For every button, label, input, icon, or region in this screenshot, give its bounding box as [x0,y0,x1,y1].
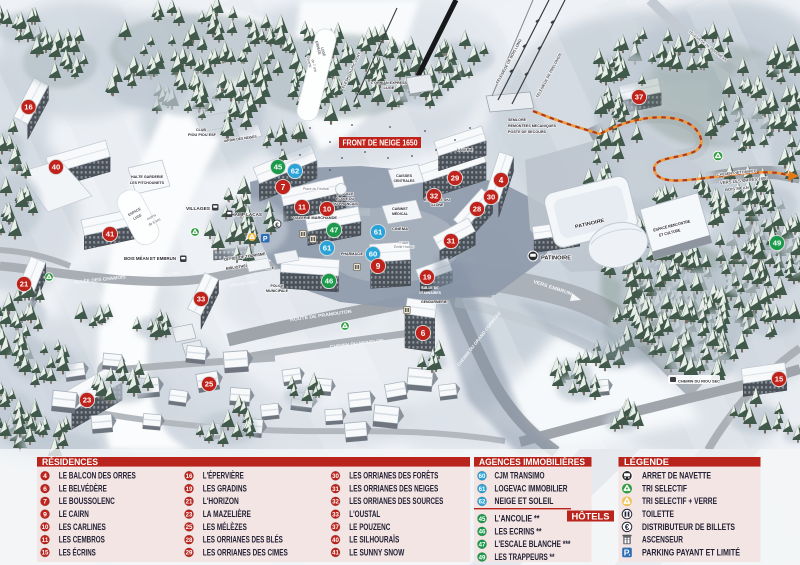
svg-text:SKI FRANÇAIS: SKI FRANÇAIS [332,202,358,206]
svg-text:6: 6 [43,486,47,493]
svg-text:16: 16 [24,103,32,112]
svg-text:CABINET: CABINET [392,207,409,211]
svg-text:LES GRADINS: LES GRADINS [203,484,247,495]
svg-text:ARRET DE NAVETTE: ARRET DE NAVETTE [642,471,711,482]
svg-text:POLICE: POLICE [271,284,284,288]
svg-text:25: 25 [205,380,214,389]
svg-text:MUNICIPALE: MUNICIPALE [266,289,288,293]
svg-text:LES ORRIANES DES CIMES: LES ORRIANES DES CIMES [203,547,288,558]
svg-text:61: 61 [479,486,486,493]
svg-text:GALERIE MARCHANDE: GALERIE MARCHANDE [293,216,337,220]
svg-text:SEMLORE: SEMLORE [508,117,526,122]
svg-text:DISTRIBUTEUR DE BILLETS: DISTRIBUTEUR DE BILLETS [642,522,735,533]
svg-text:LES CARLINES: LES CARLINES [59,522,106,533]
svg-text:LUGE: LUGE [384,85,395,90]
svg-text:LES TRAPPEURS **: LES TRAPPEURS ** [495,552,555,563]
svg-text:POSTE DE SECOURS: POSTE DE SECOURS [508,129,546,134]
svg-text:P.: P. [624,548,631,558]
svg-text:TOILETTE: TOILETTE [642,509,674,520]
svg-text:62: 62 [291,167,299,176]
svg-text:L'OUSTAL: L'OUSTAL [349,509,380,520]
svg-text:32: 32 [332,499,339,506]
svg-text:LE CAIRN: LE CAIRN [59,509,89,520]
svg-text:23: 23 [83,396,91,405]
svg-text:LÉGENDE: LÉGENDE [624,457,669,467]
svg-text:Émile Hodoul: Émile Hodoul [394,244,414,249]
svg-text:21: 21 [186,499,193,506]
svg-text:LES PITCHOUNETS: LES PITCHOUNETS [130,181,164,185]
svg-text:SALLE DE: SALLE DE [422,286,439,290]
svg-text:L'ANCOLIE **: L'ANCOLIE ** [495,514,540,525]
svg-text:31: 31 [332,486,339,493]
svg-text:23: 23 [186,511,193,518]
svg-text:BOIS MÉAN ET EMBRUN: BOIS MÉAN ET EMBRUN [124,256,176,261]
svg-text:LE POUZENC: LE POUZENC [349,522,390,533]
svg-text:TRI SELECTIF + VERRE: TRI SELECTIF + VERRE [642,496,717,507]
svg-text:6: 6 [421,329,426,338]
svg-text:CJM TRANSIMO: CJM TRANSIMO [495,471,545,482]
svg-text:LE BALCON DES ORRES: LE BALCON DES ORRES [59,471,136,482]
svg-text:33: 33 [332,511,339,518]
svg-text:9: 9 [43,511,47,518]
svg-text:21: 21 [20,280,29,289]
svg-text:15: 15 [42,550,49,557]
svg-text:32: 32 [430,192,438,201]
svg-text:PARKING PAYANT ET LIMITÉ: PARKING PAYANT ET LIMITÉ [642,546,740,558]
svg-text:LES ORRIANES DES SOURCES: LES ORRIANES DES SOURCES [349,496,443,507]
svg-text:CHAMP LACAS: CHAMP LACAS [228,212,262,217]
svg-text:LES ORRIANES DES NEIGES: LES ORRIANES DES NEIGES [349,484,438,495]
svg-text:MÉDICAL: MÉDICAL [392,211,409,216]
svg-text:REMONTÉES MÉCANIQUES: REMONTÉES MÉCANIQUES [508,123,556,128]
svg-text:PATINOIRE: PATINOIRE [541,256,571,262]
svg-text:CHEMIN DU RIOU SEC: CHEMIN DU RIOU SEC [678,379,720,384]
svg-text:LES CEMBROS: LES CEMBROS [59,535,105,546]
svg-text:30: 30 [332,473,339,480]
svg-text:SÉMINAIRES: SÉMINAIRES [419,290,441,295]
svg-text:LES ORRIANES DES FORÊTS: LES ORRIANES DES FORÊTS [349,470,438,482]
svg-text:ASCENSEUR: ASCENSEUR [642,535,683,546]
svg-text:40: 40 [332,537,339,544]
svg-text:L'HORIZON: L'HORIZON [203,496,239,507]
svg-text:LE SUNNY SNOW: LE SUNNY SNOW [349,547,405,558]
svg-text:L'ÉPERVIÈRE: L'ÉPERVIÈRE [203,470,244,482]
svg-text:11: 11 [298,203,307,212]
svg-text:60: 60 [369,250,377,259]
svg-text:49: 49 [479,554,486,561]
svg-text:47: 47 [479,542,486,549]
svg-text:30: 30 [487,193,495,202]
svg-text:19: 19 [186,486,193,493]
svg-text:CLUB: CLUB [196,128,206,132]
svg-text:37: 37 [332,524,339,531]
svg-text:LES ORRIANES DES BLÉS: LES ORRIANES DES BLÉS [203,534,283,546]
svg-text:28: 28 [186,537,193,544]
svg-text:9: 9 [376,262,381,271]
svg-text:15: 15 [775,375,784,384]
svg-text:PHARMACIE: PHARMACIE [341,252,363,256]
svg-text:46: 46 [479,529,486,536]
svg-text:LE BOUSSOLENC: LE BOUSSOLENC [59,496,115,507]
svg-text:61: 61 [323,244,332,253]
svg-text:P: P [263,236,268,243]
svg-text:LE SILHOURAÏS: LE SILHOURAÏS [349,535,399,546]
svg-text:40: 40 [52,163,60,172]
svg-text:25: 25 [186,524,193,531]
svg-text:33: 33 [197,295,205,304]
svg-text:29: 29 [186,550,193,557]
svg-text:AGENCES IMMOBILIÈRES: AGENCES IMMOBILIÈRES [479,457,585,467]
svg-text:16: 16 [186,473,193,480]
svg-text:CENTRALES: CENTRALES [394,179,415,183]
svg-text:HALTE GARDERIE: HALTE GARDERIE [131,175,163,179]
svg-text:61: 61 [374,228,383,237]
svg-text:62: 62 [479,499,486,506]
svg-text:19: 19 [423,273,431,282]
svg-text:HÔTELS: HÔTELS [572,510,610,521]
svg-text:46: 46 [325,277,333,286]
svg-text:LAVERIE: LAVERIE [457,148,473,152]
svg-text:CINÉMA: CINÉMA [392,226,408,231]
svg-text:4: 4 [499,176,504,185]
svg-text:PIOU PIOU ESF: PIOU PIOU ESF [188,133,217,137]
svg-text:€: € [625,523,630,532]
svg-text:CAISSES: CAISSES [396,174,412,178]
svg-text:4: 4 [43,473,47,480]
svg-text:28: 28 [473,205,481,214]
svg-text:Place du Festival: Place du Festival [303,187,329,191]
svg-text:LES ECRINS **: LES ECRINS ** [495,526,542,537]
svg-text:10: 10 [323,205,331,214]
svg-text:FRONT DE NEIGE 1650: FRONT DE NEIGE 1650 [343,139,418,148]
svg-text:TRI SELECTIF: TRI SELECTIF [642,484,687,495]
svg-text:GENDARMERIE: GENDARMERIE [421,300,448,304]
svg-text:7: 7 [281,183,286,192]
svg-text:31: 31 [447,237,456,246]
svg-text:41: 41 [332,550,339,557]
svg-text:ÉCOLE DU: ÉCOLE DU [336,196,354,201]
svg-text:VILLAGES: VILLAGES [186,206,210,211]
svg-text:47: 47 [330,226,338,235]
svg-text:LA MAZELIÈRE: LA MAZELIÈRE [203,508,251,520]
svg-text:29: 29 [451,174,459,183]
svg-text:LES MÉLÈZES: LES MÉLÈZES [203,521,247,533]
svg-text:NEIGE ET SOLEIL: NEIGE ET SOLEIL [495,496,554,507]
svg-text:37: 37 [635,93,643,102]
svg-text:41: 41 [106,230,115,239]
svg-text:49: 49 [773,239,781,248]
svg-text:45: 45 [479,516,486,523]
svg-text:LOGEVAC IMMOBILIER: LOGEVAC IMMOBILIER [495,484,568,495]
svg-text:RÉSIDENCES: RÉSIDENCES [42,457,98,467]
svg-text:7: 7 [43,499,47,506]
svg-text:L'ESCALE BLANCHE ***: L'ESCALE BLANCHE *** [495,539,571,550]
svg-text:€: € [275,222,279,229]
svg-text:45: 45 [274,163,283,172]
svg-text:60: 60 [479,473,486,480]
svg-text:LES ÉCRINS: LES ÉCRINS [59,546,96,558]
svg-text:10: 10 [42,524,49,531]
svg-text:11: 11 [42,537,49,544]
svg-text:LE BELVÉDÈRE: LE BELVÉDÈRE [59,483,107,495]
